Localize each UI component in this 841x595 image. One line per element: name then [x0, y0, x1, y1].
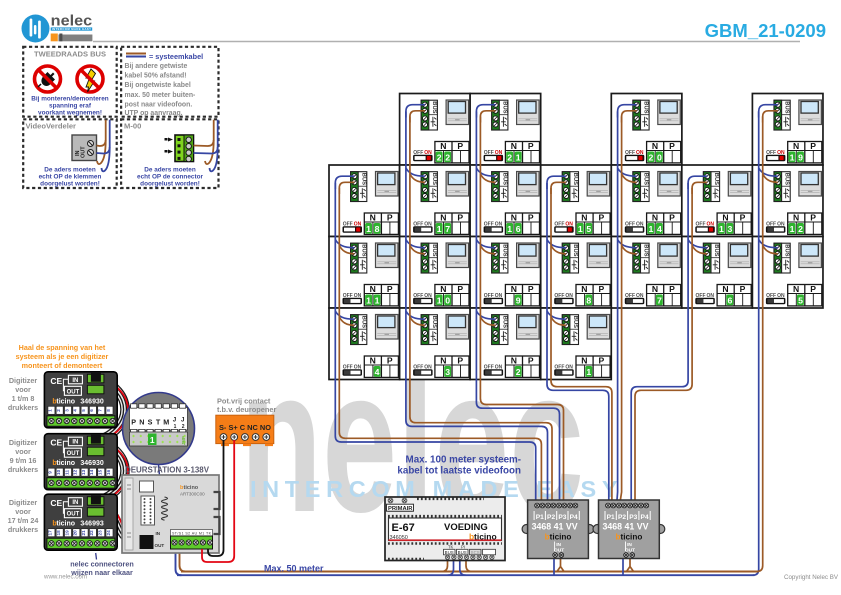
svg-text:M: M: [163, 418, 169, 427]
svg-text:2: 2: [507, 152, 512, 162]
svg-text:N: N: [581, 284, 587, 294]
svg-text:ticino: ticino: [550, 533, 572, 542]
svg-text:IN: IN: [556, 542, 561, 548]
svg-text:16: 16: [106, 469, 111, 475]
svg-text:VideoVerdeler: VideoVerdeler: [26, 122, 77, 131]
svg-text:IN: IN: [72, 378, 78, 384]
svg-text:N: N: [722, 284, 728, 294]
svg-text:P: P: [528, 213, 534, 223]
svg-text:1: 1: [437, 224, 442, 234]
svg-text:P: P: [457, 284, 463, 294]
svg-text:voor: voor: [15, 385, 31, 394]
svg-text:OUT: OUT: [67, 512, 80, 518]
svg-text:BUS: BUS: [431, 316, 437, 328]
svg-text:BUS: BUS: [360, 173, 366, 185]
svg-text:UTP op aanvraag.: UTP op aanvraag.: [125, 110, 183, 117]
svg-text:1: 1: [516, 152, 521, 162]
svg-text:17 t/m 24: 17 t/m 24: [8, 516, 39, 525]
svg-text:BUS: BUS: [784, 244, 790, 256]
svg-text:BUS: BUS: [431, 101, 437, 113]
svg-text:6: 6: [516, 224, 521, 234]
svg-text:P4: P4: [570, 514, 578, 521]
svg-text:BUS: BUS: [572, 244, 578, 256]
svg-text:BUS: BUS: [784, 173, 790, 185]
svg-text:= systeemkabel: = systeemkabel: [149, 52, 203, 61]
svg-text:t.b.v. deuropener: t.b.v. deuropener: [217, 405, 277, 414]
svg-text:ticino: ticino: [621, 533, 643, 542]
svg-text:N: N: [440, 284, 446, 294]
svg-text:P: P: [810, 284, 816, 294]
svg-text:8: 8: [586, 295, 591, 305]
svg-text:Bij monteren/demonteren: Bij monteren/demonteren: [31, 96, 109, 103]
svg-text:PRIMAIR: PRIMAIR: [388, 506, 413, 512]
svg-text:BUS: BUS: [572, 173, 578, 185]
svg-text:N: N: [370, 356, 376, 366]
svg-text:N: N: [793, 141, 799, 151]
svg-text:OUT: OUT: [67, 451, 80, 457]
svg-text:OUT: OUT: [81, 146, 87, 158]
svg-text:2: 2: [437, 152, 442, 162]
svg-text:19: 19: [64, 530, 69, 536]
svg-text:kabel tot laatste videofoon: kabel tot laatste videofoon: [397, 466, 521, 477]
svg-text:P1: P1: [607, 514, 615, 521]
svg-text:De aders moeten: De aders moeten: [44, 167, 96, 174]
svg-text:IN: IN: [627, 542, 632, 548]
svg-text:P: P: [669, 141, 675, 151]
svg-text:N: N: [793, 213, 799, 223]
svg-text:OUT: OUT: [67, 389, 80, 395]
svg-text:TWEEDRAADS BUS: TWEEDRAADS BUS: [34, 50, 106, 59]
svg-text:2: 2: [445, 152, 450, 162]
svg-text:BUS: BUS: [360, 316, 366, 328]
svg-text:6: 6: [89, 409, 94, 412]
svg-text:346993: 346993: [80, 521, 103, 528]
svg-text:1: 1: [578, 224, 583, 234]
svg-text:P: P: [131, 418, 136, 427]
svg-text:18: 18: [56, 530, 61, 536]
svg-text:CE: CE: [50, 498, 62, 508]
svg-text:7: 7: [445, 224, 450, 234]
svg-text:N: N: [440, 356, 446, 366]
svg-text:4: 4: [375, 367, 380, 377]
svg-text:Max. 50 meter: Max. 50 meter: [264, 564, 324, 574]
svg-text:De aders moeten: De aders moeten: [144, 167, 196, 174]
svg-text:8: 8: [106, 409, 111, 412]
svg-text:9: 9: [516, 295, 521, 305]
svg-text:ticino: ticino: [56, 398, 75, 405]
svg-text:E-67: E-67: [392, 522, 415, 534]
svg-text:N: N: [722, 213, 728, 223]
svg-text:BUS: BUS: [431, 244, 437, 256]
svg-text:ticino: ticino: [56, 521, 75, 528]
svg-text:21: 21: [81, 530, 86, 536]
svg-text:3: 3: [445, 367, 450, 377]
svg-text:1: 1: [507, 224, 512, 234]
svg-text:BUS: BUS: [501, 101, 507, 113]
svg-text:Copyright Nelec BV: Copyright Nelec BV: [784, 574, 839, 581]
svg-text:BUS: BUS: [643, 101, 649, 113]
svg-text:346930: 346930: [80, 460, 103, 467]
svg-text:P: P: [387, 356, 393, 366]
svg-text:www.nelec.com: www.nelec.com: [43, 574, 87, 581]
svg-text:Digitizer: Digitizer: [9, 498, 38, 507]
svg-text:N: N: [440, 213, 446, 223]
svg-text:23: 23: [98, 530, 103, 536]
svg-text:Haal de spanning van het: Haal de spanning van het: [19, 343, 106, 352]
svg-text:1: 1: [648, 224, 653, 234]
svg-text:P: P: [810, 141, 816, 151]
svg-text:4: 4: [73, 409, 78, 412]
svg-text:drukkers: drukkers: [8, 403, 38, 412]
svg-text:1: 1: [150, 435, 155, 445]
svg-text:1: 1: [174, 424, 177, 430]
svg-text:P: P: [740, 284, 746, 294]
svg-text:P: P: [599, 213, 605, 223]
svg-text:3468 41 VV: 3468 41 VV: [532, 522, 578, 532]
svg-text:DEURSTATION 3-138V: DEURSTATION 3-138V: [125, 466, 210, 475]
svg-text:BUS: BUS: [501, 316, 507, 328]
svg-text:Digitizer: Digitizer: [9, 376, 38, 385]
svg-text:P4: P4: [641, 514, 649, 521]
svg-text:4: 4: [657, 224, 662, 234]
svg-text:BUS: BUS: [360, 244, 366, 256]
svg-text:N: N: [511, 213, 517, 223]
svg-text:N: N: [652, 213, 658, 223]
svg-text:P: P: [457, 213, 463, 223]
svg-text:BUS: BUS: [572, 316, 578, 328]
svg-text:5: 5: [586, 224, 591, 234]
svg-text:SCS: SCS: [471, 550, 480, 555]
svg-text:Digitizer: Digitizer: [9, 438, 38, 447]
svg-text:3: 3: [64, 409, 69, 412]
svg-text:9: 9: [798, 152, 803, 162]
svg-text:P3: P3: [629, 514, 637, 521]
svg-text:post naar videofoon.: post naar videofoon.: [125, 101, 193, 108]
svg-text:20: 20: [73, 530, 78, 536]
svg-text:P: P: [457, 141, 463, 151]
svg-text:systeem als je een digitizer: systeem als je een digitizer: [16, 352, 109, 361]
svg-text:1: 1: [719, 224, 724, 234]
svg-text:2: 2: [798, 224, 803, 234]
svg-text:5: 5: [81, 409, 86, 412]
svg-text:2: 2: [182, 424, 185, 430]
svg-text:BUS: BUS: [445, 550, 454, 555]
svg-text:346050: 346050: [390, 535, 408, 541]
svg-text:P: P: [599, 284, 605, 294]
svg-text:17: 17: [48, 530, 53, 536]
svg-text:1 t/m 8: 1 t/m 8: [12, 394, 35, 403]
svg-text:P1: P1: [536, 514, 544, 521]
svg-text:S: S: [148, 418, 153, 427]
svg-text:P2: P2: [547, 514, 555, 521]
svg-text:BUS: BUS: [501, 244, 507, 256]
svg-text:monteert of demonteert: monteert of demonteert: [22, 361, 103, 370]
svg-text:J: J: [173, 417, 177, 424]
svg-text:N: N: [793, 284, 799, 294]
svg-text:2: 2: [516, 367, 521, 377]
svg-text:N: N: [440, 141, 446, 151]
svg-text:PI: PI: [461, 544, 465, 549]
svg-text:echt OP de connector: echt OP de connector: [137, 174, 203, 181]
svg-text:Bij ongetwiste kabel: Bij ongetwiste kabel: [125, 82, 191, 89]
svg-text:2: 2: [56, 409, 61, 412]
svg-text:IN: IN: [156, 531, 161, 536]
svg-text:Max. 100 meter systeem-: Max. 100 meter systeem-: [406, 455, 521, 466]
svg-text:drukkers: drukkers: [8, 465, 38, 474]
svg-text:3: 3: [727, 224, 732, 234]
svg-text:11: 11: [64, 470, 69, 475]
svg-text:9 t/m 16: 9 t/m 16: [10, 456, 37, 465]
svg-text:1: 1: [790, 152, 795, 162]
svg-text:CE: CE: [50, 376, 62, 386]
svg-text:14: 14: [89, 469, 94, 475]
svg-text:10: 10: [56, 469, 61, 475]
svg-text:J: J: [181, 417, 185, 424]
svg-text:0: 0: [657, 152, 662, 162]
svg-text:voor: voor: [15, 447, 31, 456]
svg-text:M-00: M-00: [124, 122, 141, 131]
svg-text:1: 1: [586, 367, 591, 377]
svg-text:BUS: BUS: [643, 173, 649, 185]
svg-text:2: 2: [648, 152, 653, 162]
svg-text:5: 5: [798, 295, 803, 305]
svg-text:N: N: [511, 141, 517, 151]
svg-text:voor: voor: [15, 507, 31, 516]
svg-text:N: N: [652, 141, 658, 151]
svg-text:6: 6: [727, 295, 732, 305]
svg-text:IN: IN: [72, 440, 78, 446]
svg-text:N: N: [511, 356, 517, 366]
svg-text:CE: CE: [50, 438, 62, 448]
svg-text:max. 50 meter buiten-: max. 50 meter buiten-: [125, 92, 197, 99]
svg-text:doorgelust worden!: doorgelust worden!: [140, 181, 200, 188]
svg-text:P: P: [599, 356, 605, 366]
svg-text:1: 1: [375, 295, 380, 305]
svg-text:BUS: BUS: [713, 173, 719, 185]
svg-text:GBM_21-0209: GBM_21-0209: [705, 20, 826, 41]
svg-text:BUS: BUS: [713, 244, 719, 256]
svg-text:P: P: [810, 213, 816, 223]
svg-text:P: P: [387, 284, 393, 294]
svg-text:ticino: ticino: [56, 460, 75, 467]
svg-text:drukkers: drukkers: [8, 525, 38, 534]
svg-text:22: 22: [89, 530, 94, 536]
svg-text:N: N: [139, 418, 144, 427]
svg-text:BUS: BUS: [501, 173, 507, 185]
svg-text:0: 0: [445, 295, 450, 305]
svg-text:1: 1: [790, 224, 795, 234]
svg-text:P: P: [457, 356, 463, 366]
svg-text:P: P: [528, 356, 534, 366]
svg-text:P2: P2: [618, 514, 626, 521]
svg-text:P: P: [669, 284, 675, 294]
svg-text:1: 1: [437, 295, 442, 305]
svg-text:P: P: [669, 213, 675, 223]
svg-text:N: N: [370, 284, 376, 294]
svg-text:P: P: [528, 284, 534, 294]
svg-text:spanning eraf: spanning eraf: [49, 103, 92, 110]
svg-text:ST/S1 S2 AU M1 TK: ST/S1 S2 AU M1 TK: [172, 531, 212, 535]
svg-text:IN: IN: [72, 500, 78, 506]
svg-text:BUS: BUS: [458, 550, 467, 555]
svg-text:1: 1: [366, 224, 371, 234]
svg-text:N: N: [581, 213, 587, 223]
svg-text:24: 24: [106, 530, 111, 536]
svg-text:voorkant wegnemen!: voorkant wegnemen!: [38, 110, 102, 117]
svg-text:ticino: ticino: [474, 532, 497, 542]
svg-text:8: 8: [375, 224, 380, 234]
svg-text:1: 1: [366, 295, 371, 305]
svg-text:1: 1: [48, 409, 53, 412]
svg-text:BUS: BUS: [431, 173, 437, 185]
svg-text:N: N: [581, 356, 587, 366]
svg-text:7: 7: [657, 295, 662, 305]
svg-text:BUS: BUS: [643, 244, 649, 256]
svg-text:P: P: [740, 213, 746, 223]
svg-text:T: T: [156, 418, 161, 427]
svg-text:N: N: [370, 213, 376, 223]
svg-text:doorgelust worden!: doorgelust worden!: [40, 181, 100, 188]
svg-text:INTERCOM MADE EASY: INTERCOM MADE EASY: [52, 27, 91, 31]
svg-text:Bij andere getwiste: Bij andere getwiste: [125, 63, 188, 70]
svg-text:echt OP de klemmen: echt OP de klemmen: [39, 174, 102, 181]
svg-text:ART300C00: ART300C00: [180, 492, 205, 497]
svg-text:N: N: [652, 284, 658, 294]
svg-text:P3: P3: [558, 514, 566, 521]
svg-text:9: 9: [48, 471, 53, 474]
svg-text:ticino: ticino: [184, 485, 199, 491]
svg-text:N: N: [511, 284, 517, 294]
svg-text:TK: TK: [448, 544, 454, 549]
svg-text:S- S+ C NC NO: S- S+ C NC NO: [219, 423, 271, 432]
svg-text:12: 12: [73, 469, 78, 475]
svg-text:346930: 346930: [80, 398, 103, 405]
svg-text:P: P: [387, 213, 393, 223]
svg-text:P: P: [528, 141, 534, 151]
svg-text:kabel 50% afstand!: kabel 50% afstand!: [125, 73, 187, 80]
svg-text:7: 7: [98, 409, 103, 412]
svg-text:OUT: OUT: [155, 543, 165, 548]
svg-text:13: 13: [81, 469, 86, 475]
svg-text:3468 41 VV: 3468 41 VV: [603, 522, 649, 532]
svg-text:JMP: JMP: [181, 436, 186, 445]
svg-text:15: 15: [98, 469, 103, 475]
svg-text:BUS: BUS: [784, 101, 790, 113]
